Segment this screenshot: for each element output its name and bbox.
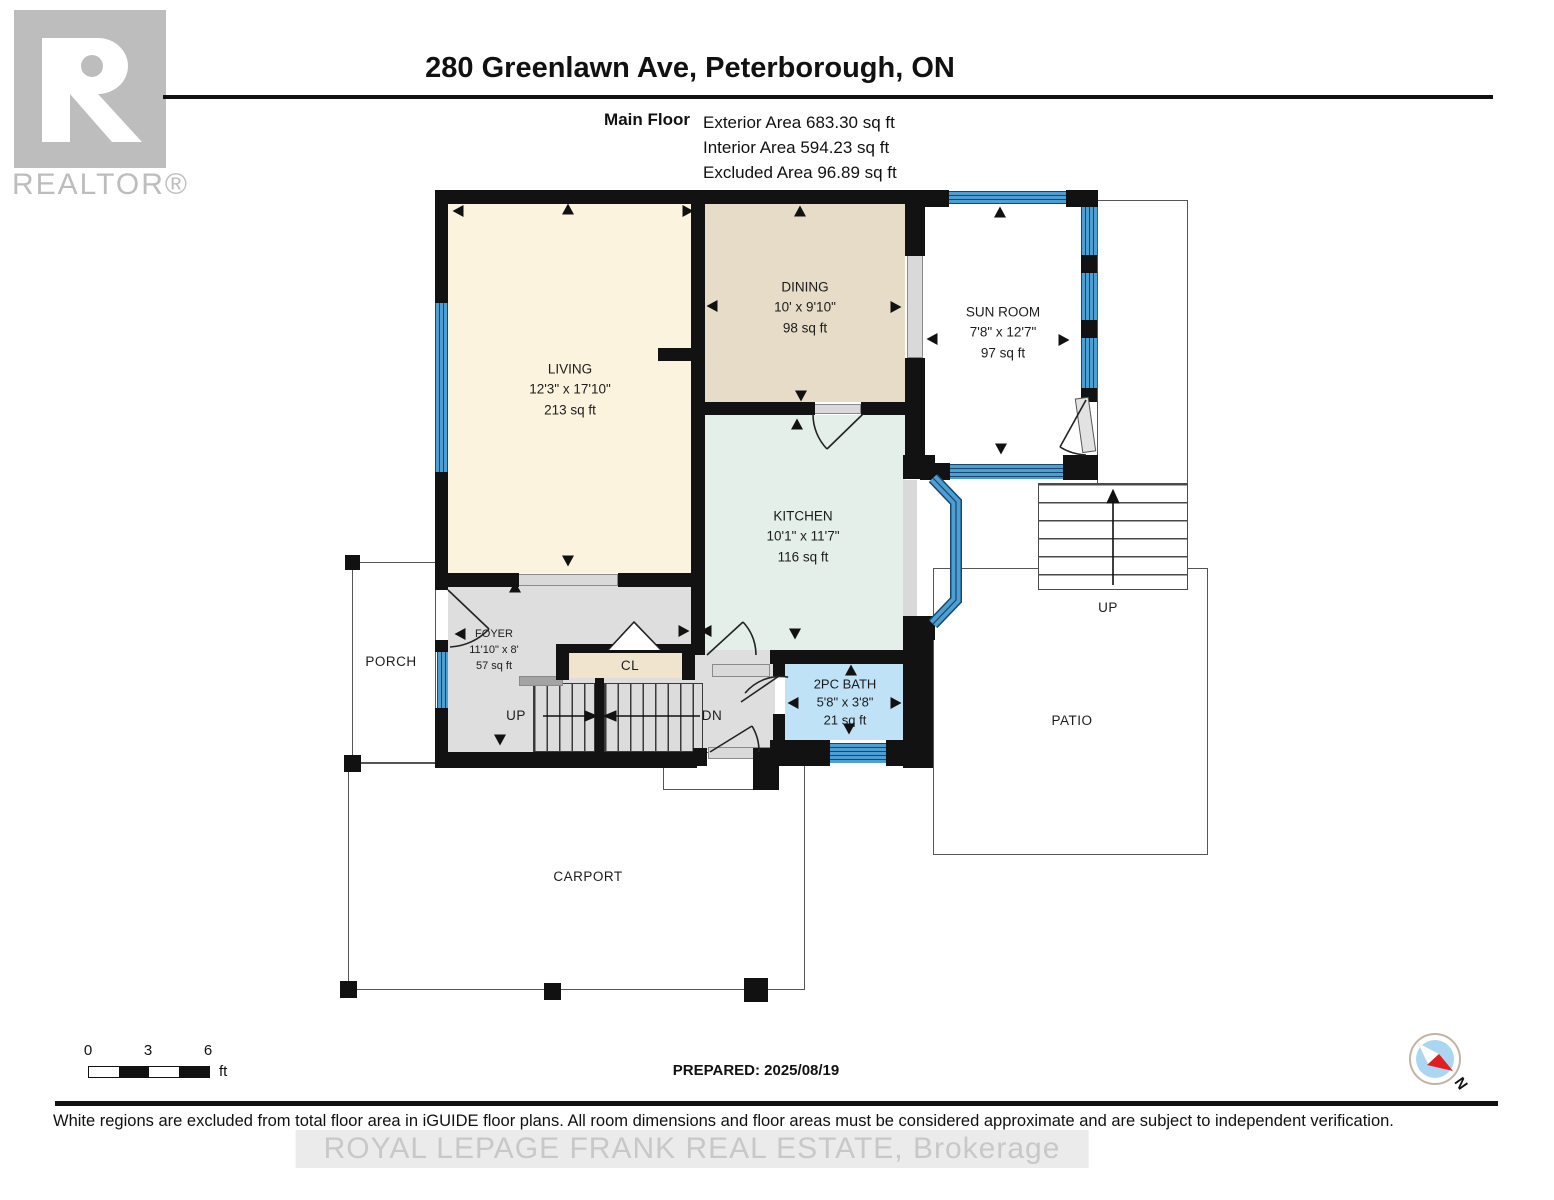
wall <box>905 358 925 465</box>
sunroom-window-top <box>947 191 1067 204</box>
wall <box>773 650 785 676</box>
wall <box>435 190 448 303</box>
wall <box>435 752 697 768</box>
dining-label: DINING10' x 9'10"98 sq ft <box>774 278 836 339</box>
wall <box>1081 388 1097 402</box>
carport-post <box>744 978 768 1002</box>
living-foyer-opening <box>517 574 618 586</box>
sunroom-window-bottom <box>948 464 1064 479</box>
wall <box>618 573 693 587</box>
wall <box>753 748 779 790</box>
wall <box>682 644 695 680</box>
wall <box>435 190 917 204</box>
direction-arrow <box>845 665 857 676</box>
exterior-area: Exterior Area 683.30 sq ft <box>703 110 897 135</box>
wall <box>556 644 695 653</box>
foyer-window <box>437 650 448 708</box>
realtor-wordmark: REALTOR® <box>12 168 189 202</box>
wall <box>1063 455 1098 480</box>
area-summary: Exterior Area 683.30 sq ft Interior Area… <box>703 110 897 185</box>
direction-arrow <box>994 207 1006 218</box>
direction-arrow <box>494 735 506 746</box>
porch-post <box>345 555 360 570</box>
realtor-logo <box>14 10 166 168</box>
direction-arrow <box>1059 334 1070 346</box>
stairs-dn-label: DN <box>702 706 723 726</box>
wall <box>770 650 905 664</box>
direction-arrow <box>701 625 712 637</box>
porch-label: PORCH <box>365 652 416 672</box>
direction-arrow <box>789 629 801 640</box>
wall <box>903 616 935 640</box>
direction-arrow <box>995 444 1007 455</box>
direction-arrow <box>927 333 938 345</box>
wall <box>1081 320 1097 338</box>
carport-post <box>544 983 561 1000</box>
disclaimer-text: White regions are excluded from total fl… <box>53 1112 1394 1131</box>
compass-north-label: N <box>1451 1074 1471 1093</box>
bay-opening <box>903 480 917 616</box>
wall <box>693 748 707 766</box>
direction-arrow <box>679 625 690 637</box>
direction-arrow <box>455 628 466 640</box>
wall <box>1066 190 1098 207</box>
header-divider <box>163 95 1493 99</box>
direction-arrow <box>453 205 464 217</box>
stairs-down <box>604 683 703 752</box>
wall <box>658 348 693 361</box>
direction-arrow <box>562 556 574 567</box>
direction-arrow <box>707 300 718 312</box>
patio-label: PATIO <box>1051 711 1092 731</box>
sunroom-window-right <box>1081 207 1097 255</box>
wall <box>770 740 830 766</box>
wall <box>705 402 815 415</box>
prepared-date: PREPARED: 2025/08/19 <box>673 1062 839 1079</box>
carport-post <box>340 981 357 998</box>
wall <box>861 402 907 415</box>
wall <box>556 644 569 680</box>
direction-arrow <box>843 724 855 735</box>
floor-name: Main Floor <box>604 110 690 130</box>
carport-label: CARPORT <box>553 867 622 887</box>
closet-label: CL <box>621 656 639 676</box>
exterior-stairs-label: UP <box>1098 598 1118 618</box>
footer-divider <box>55 1101 1498 1106</box>
scale-unit: ft <box>219 1063 227 1080</box>
landing-door-slab <box>712 664 770 677</box>
wall <box>435 640 448 652</box>
page-title: 280 Greenlawn Ave, Peterborough, ON <box>425 52 955 85</box>
direction-arrow <box>791 419 803 430</box>
direction-arrow <box>891 301 902 313</box>
wall <box>905 203 925 256</box>
wall <box>903 455 935 479</box>
dining-kitchen-doorsill <box>813 404 861 414</box>
wall <box>1081 255 1097 273</box>
floor-plan-page: REALTOR® 280 Greenlawn Ave, Peterborough… <box>0 0 1554 1200</box>
brokerage-watermark: ROYAL LEPAGE FRANK REAL ESTATE, Brokerag… <box>296 1130 1089 1168</box>
stairs-up-label: UP <box>506 706 526 726</box>
wall <box>691 203 705 655</box>
living-window <box>435 303 448 472</box>
direction-arrow <box>891 697 902 709</box>
sunroom-label: SUN ROOM7'8" x 12'7"97 sq ft <box>966 303 1040 364</box>
sunroom-window-right <box>1081 338 1097 388</box>
direction-arrow <box>795 391 807 402</box>
porch-post <box>344 755 361 772</box>
wall <box>435 573 519 587</box>
foyer-label: FOYER11'10" x 8'57 sq ft <box>469 627 519 675</box>
stairs-up <box>533 683 595 752</box>
direction-arrow <box>509 582 521 593</box>
compass-icon: N <box>1402 1026 1474 1098</box>
scale-bar <box>88 1066 210 1078</box>
direction-arrow <box>788 697 799 709</box>
exterior-stairs <box>1038 483 1188 590</box>
direction-arrow <box>794 206 806 217</box>
wall <box>886 740 905 766</box>
bath-label: 2PC BATH5'8" x 3'8"21 sq ft <box>814 676 877 731</box>
interior-area: Interior Area 594.23 sq ft <box>703 135 897 160</box>
deck-outline <box>1097 200 1188 484</box>
bath-window <box>828 743 886 763</box>
direction-arrow <box>562 204 574 215</box>
dining-sunroom-slider <box>907 255 923 358</box>
wall <box>903 640 933 768</box>
wall <box>595 678 604 752</box>
living-label: LIVING12'3" x 17'10"213 sq ft <box>529 360 611 421</box>
kitchen-label: KITCHEN10'1" x 11'7"116 sq ft <box>766 507 839 568</box>
excluded-area: Excluded Area 96.89 sq ft <box>703 160 897 185</box>
direction-arrow <box>683 205 694 217</box>
sunroom-window-right <box>1081 273 1097 320</box>
